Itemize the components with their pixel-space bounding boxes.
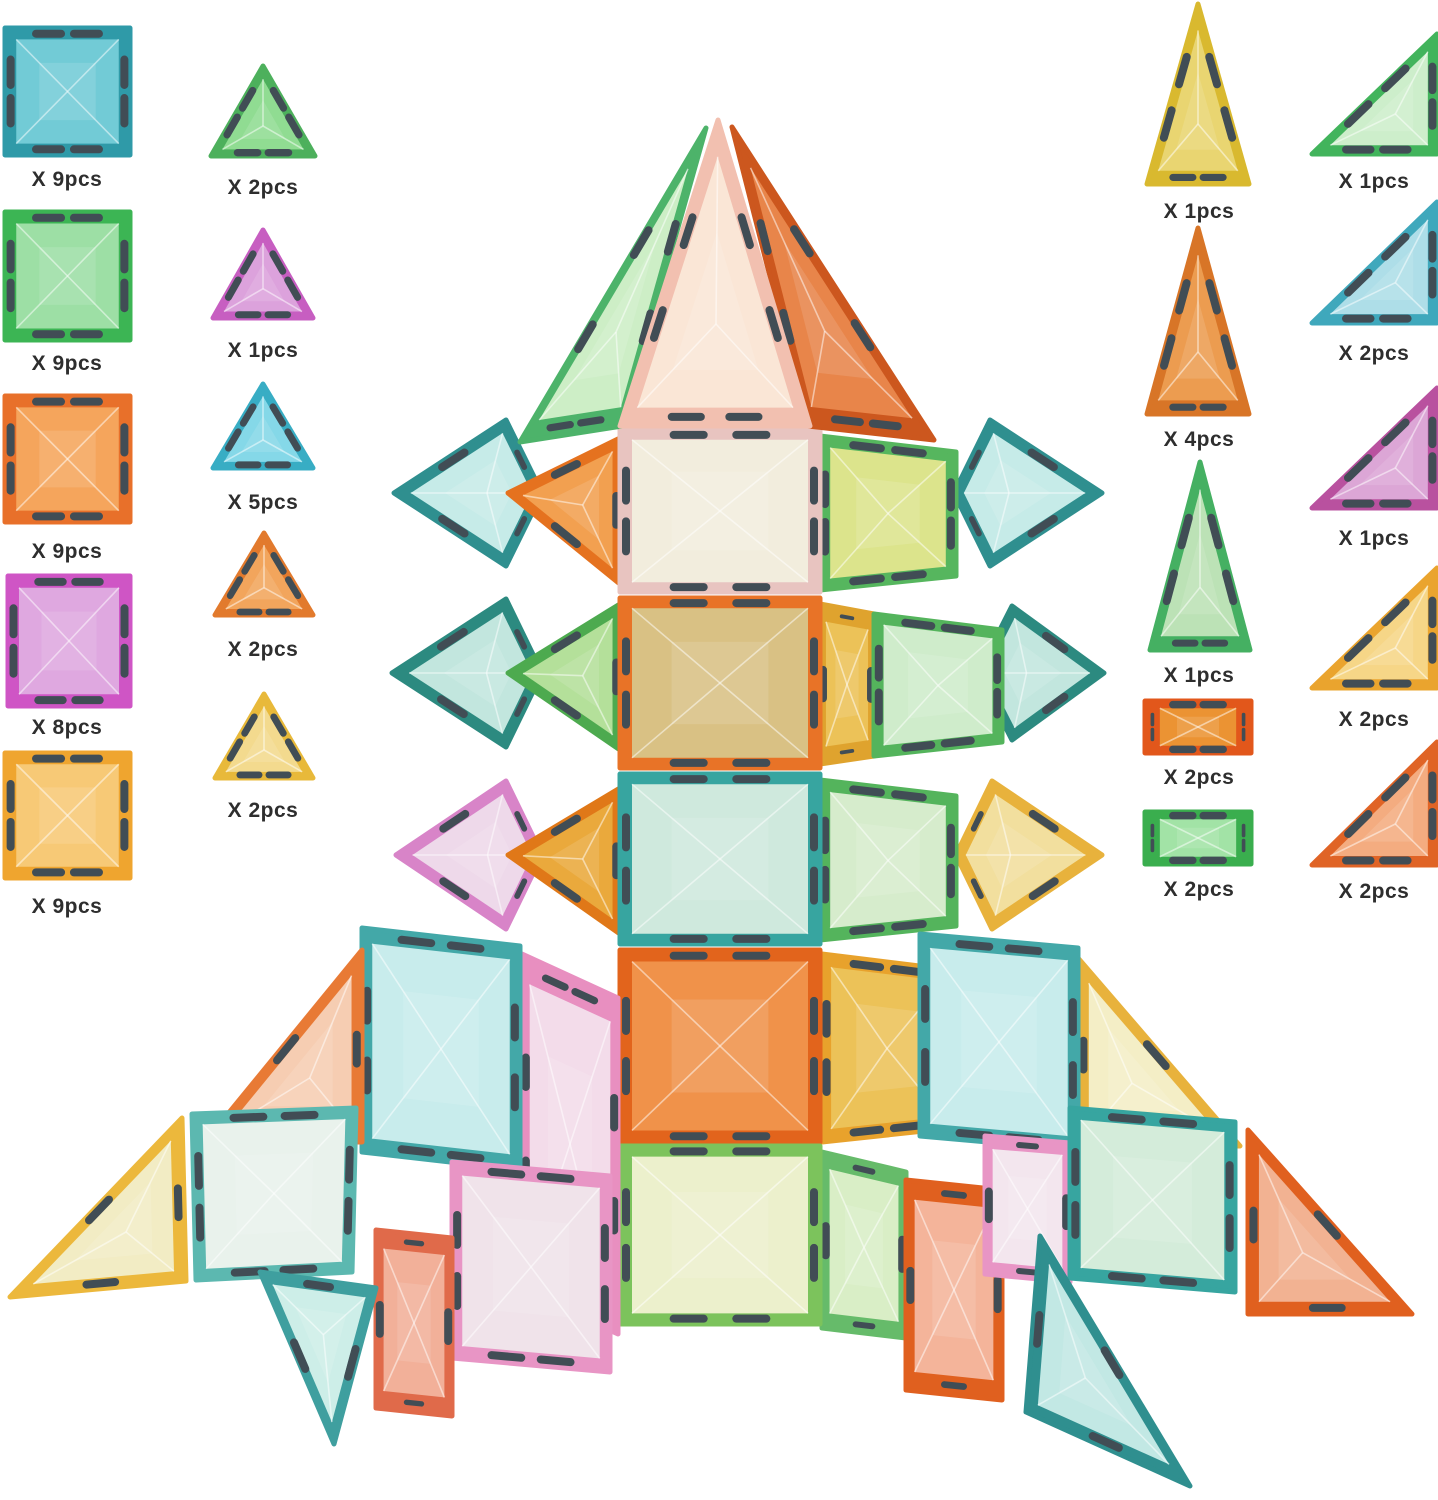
green-tall-triangle-tile bbox=[1150, 462, 1250, 650]
count-label-green-tall-triangle: X 1pcs bbox=[1164, 664, 1235, 688]
count-label-green-rectangle: X 2pcs bbox=[1164, 878, 1235, 902]
product-image: X 9pcs X 9pcs X 9pcs X 8pcs X 9pcs X 2pc… bbox=[0, 0, 1438, 1500]
green-square-tile bbox=[5, 212, 130, 340]
count-label-orange-triangle: X 2pcs bbox=[228, 638, 299, 662]
orange-square-tile bbox=[5, 396, 130, 522]
yellow-right-triangle-tile bbox=[1312, 568, 1437, 688]
pink-right-triangle-tile bbox=[1312, 388, 1437, 508]
count-label-pink-square: X 8pcs bbox=[32, 716, 103, 740]
body-row1-pale-square-center bbox=[620, 430, 820, 592]
right-fin-mint-square bbox=[1070, 1108, 1235, 1292]
count-label-teal-square: X 9pcs bbox=[32, 168, 103, 192]
body-row2-green-triangle-left bbox=[508, 604, 620, 750]
body-row5-pale-green-square-center bbox=[620, 1146, 820, 1324]
body-row2-tan-square-center bbox=[620, 598, 820, 768]
count-label-orange-rectangle: X 2pcs bbox=[1164, 766, 1235, 790]
body-row2-gold-trapezoid-right bbox=[820, 604, 874, 764]
left-fin-peach-square bbox=[376, 1230, 452, 1416]
blue-right-triangle-tile bbox=[1312, 202, 1437, 323]
count-label-yellow-tall-triangle: X 1pcs bbox=[1164, 200, 1235, 224]
count-label-orange-tall-triangle: X 4pcs bbox=[1164, 428, 1235, 452]
count-label-green-square: X 9pcs bbox=[32, 352, 103, 376]
body-row4-orange-square-center bbox=[620, 950, 820, 1142]
count-label-yellow-triangle: X 2pcs bbox=[228, 799, 299, 823]
left-fin-pink-square bbox=[452, 1162, 610, 1372]
count-label-pink-right-triangle: X 1pcs bbox=[1339, 527, 1410, 551]
body-row5-mint-square-right bbox=[822, 1152, 906, 1338]
orange-right-triangle-tile bbox=[1312, 742, 1437, 865]
body-row1-green-square-right bbox=[820, 436, 956, 590]
count-label-cyan-triangle: X 5pcs bbox=[228, 491, 299, 515]
count-label-green-triangle: X 2pcs bbox=[228, 176, 299, 200]
orange-tall-triangle-tile bbox=[1147, 228, 1249, 414]
pink-square-tile bbox=[8, 576, 130, 706]
yellow-tall-triangle-tile bbox=[1147, 4, 1249, 184]
body-row3-mint-square-right bbox=[820, 780, 956, 940]
magnetic-tiles-canvas bbox=[0, 0, 1438, 1500]
green-right-triangle-tile bbox=[1312, 34, 1437, 154]
count-label-yellow-square: X 9pcs bbox=[32, 895, 103, 919]
body-row2-mint-square-right bbox=[874, 614, 1002, 756]
count-label-pink-triangle: X 1pcs bbox=[228, 339, 299, 363]
body-row1-cyan-kite-right bbox=[954, 420, 1102, 566]
right-fin-orange-tip-triangle bbox=[1248, 1130, 1412, 1314]
pink-triangle-tile bbox=[213, 230, 313, 318]
teal-square-tile bbox=[5, 28, 130, 155]
green-triangle-tile bbox=[211, 66, 315, 156]
orange-rectangle-tile bbox=[1145, 701, 1251, 753]
left-fin-teal-exhaust-triangle bbox=[260, 1272, 376, 1444]
body-row3-gold-kite-right bbox=[956, 781, 1102, 929]
count-label-green-right-triangle: X 1pcs bbox=[1339, 170, 1410, 194]
count-label-blue-right-triangle: X 2pcs bbox=[1339, 342, 1410, 366]
left-fin-yellow-tip-triangle bbox=[10, 1118, 186, 1297]
yellow-triangle-tile bbox=[215, 694, 313, 778]
count-label-orange-right-triangle: X 2pcs bbox=[1339, 880, 1410, 904]
green-rectangle-tile bbox=[1145, 812, 1251, 864]
orange-triangle-tile bbox=[215, 533, 313, 615]
cyan-triangle-tile bbox=[213, 384, 313, 468]
left-fin-teal-square bbox=[362, 928, 520, 1170]
right-fin-cyan-square bbox=[920, 934, 1078, 1150]
body-row3-amber-triangle-left bbox=[508, 788, 620, 934]
body-row3-mint-square-center bbox=[620, 774, 820, 944]
yellow-square-tile bbox=[5, 753, 130, 878]
count-label-yellow-right-triangle: X 2pcs bbox=[1339, 708, 1410, 732]
count-label-orange-square: X 9pcs bbox=[32, 540, 103, 564]
left-fin-pale-square bbox=[192, 1108, 356, 1280]
